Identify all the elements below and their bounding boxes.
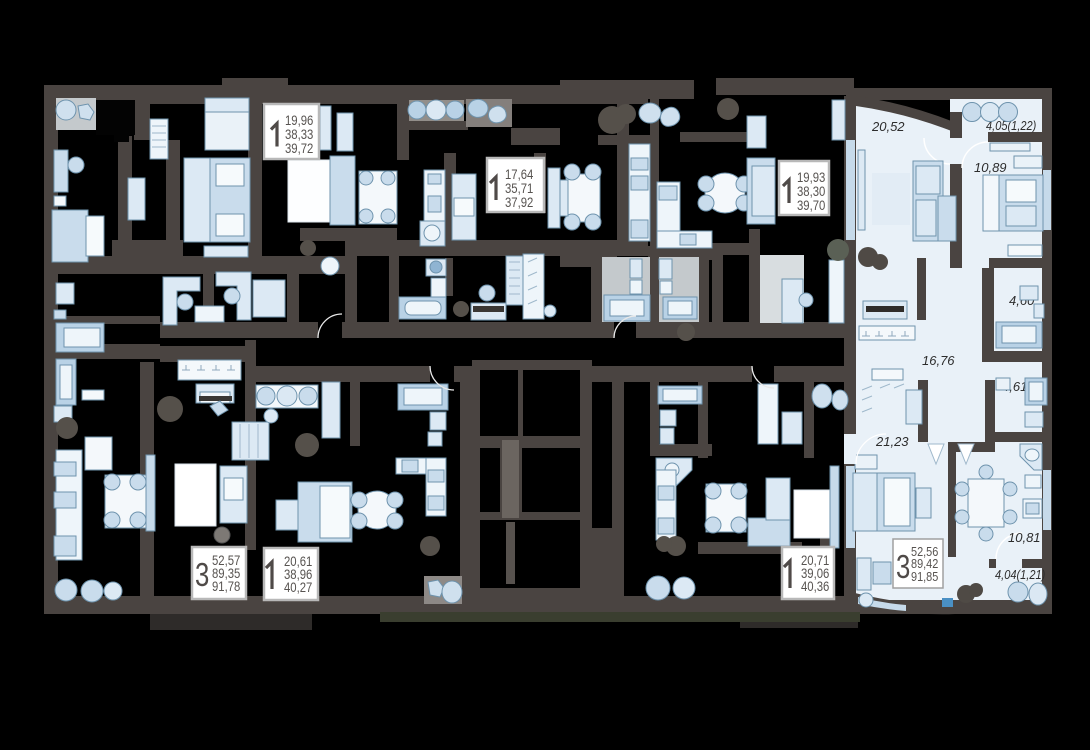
svg-text:4,04(1,21): 4,04(1,21)	[995, 567, 1045, 582]
svg-text:3: 3	[896, 549, 910, 586]
svg-text:19,96: 19,96	[285, 113, 313, 128]
svg-text:38,30: 38,30	[797, 184, 825, 199]
svg-text:38,33: 38,33	[285, 127, 313, 142]
svg-text:21,23: 21,23	[875, 434, 909, 449]
svg-text:16,76: 16,76	[922, 353, 955, 368]
svg-text:17,64: 17,64	[505, 167, 533, 182]
svg-text:91,85: 91,85	[911, 569, 939, 584]
svg-text:35,71: 35,71	[505, 181, 533, 196]
svg-text:39,70: 39,70	[797, 198, 825, 213]
svg-text:37,92: 37,92	[505, 195, 533, 210]
svg-text:40,27: 40,27	[284, 580, 312, 595]
svg-text:10,89: 10,89	[974, 160, 1007, 175]
svg-text:3: 3	[195, 557, 209, 594]
svg-text:39,72: 39,72	[285, 141, 313, 156]
svg-text:19,93: 19,93	[797, 170, 825, 185]
svg-text:91,78: 91,78	[212, 579, 240, 594]
svg-text:20,52: 20,52	[871, 119, 905, 134]
svg-text:40,36: 40,36	[801, 579, 829, 594]
svg-text:10,81: 10,81	[1008, 530, 1041, 545]
